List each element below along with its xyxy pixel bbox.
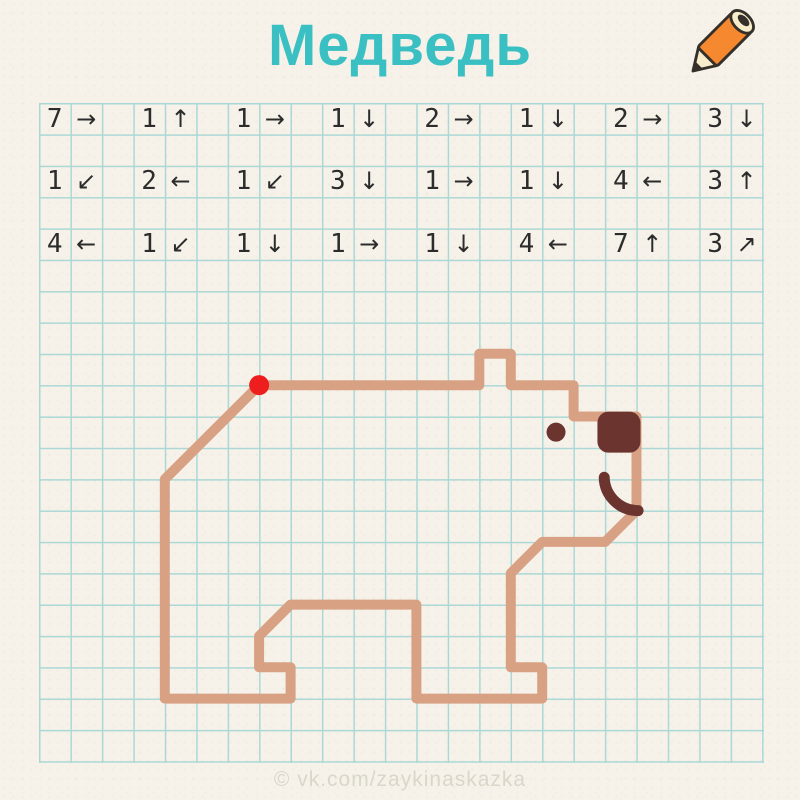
bear-outline-path [165,354,637,699]
start-dot [249,375,269,395]
bear-drawing [0,0,800,800]
bear-nose [597,412,640,453]
bear-eye [547,423,566,442]
watermark: © vk.com/zaykinaskazka [0,768,800,792]
